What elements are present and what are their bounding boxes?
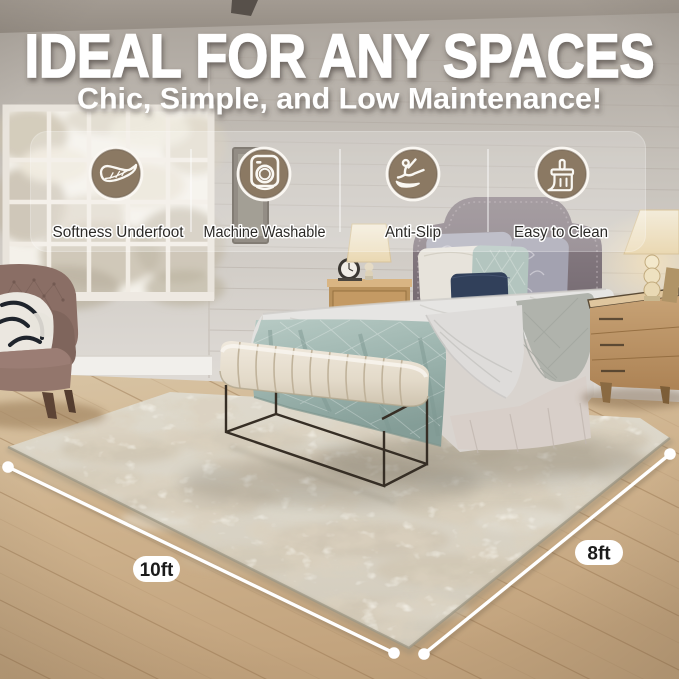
svg-text:Easy to Clean: Easy to Clean: [514, 224, 608, 241]
svg-text:Softness Underfoot: Softness Underfoot: [53, 224, 185, 241]
svg-text:Machine Washable: Machine Washable: [204, 224, 326, 241]
svg-text:8ft: 8ft: [587, 544, 611, 565]
svg-text:Chic, Simple, and Low Maintena: Chic, Simple, and Low Maintenance!: [77, 83, 602, 116]
svg-text:10ft: 10ft: [140, 560, 174, 581]
svg-text:Anti-Slip: Anti-Slip: [385, 224, 441, 241]
svg-text:IDEAL FOR ANY SPACES: IDEAL FOR ANY SPACES: [25, 22, 655, 90]
